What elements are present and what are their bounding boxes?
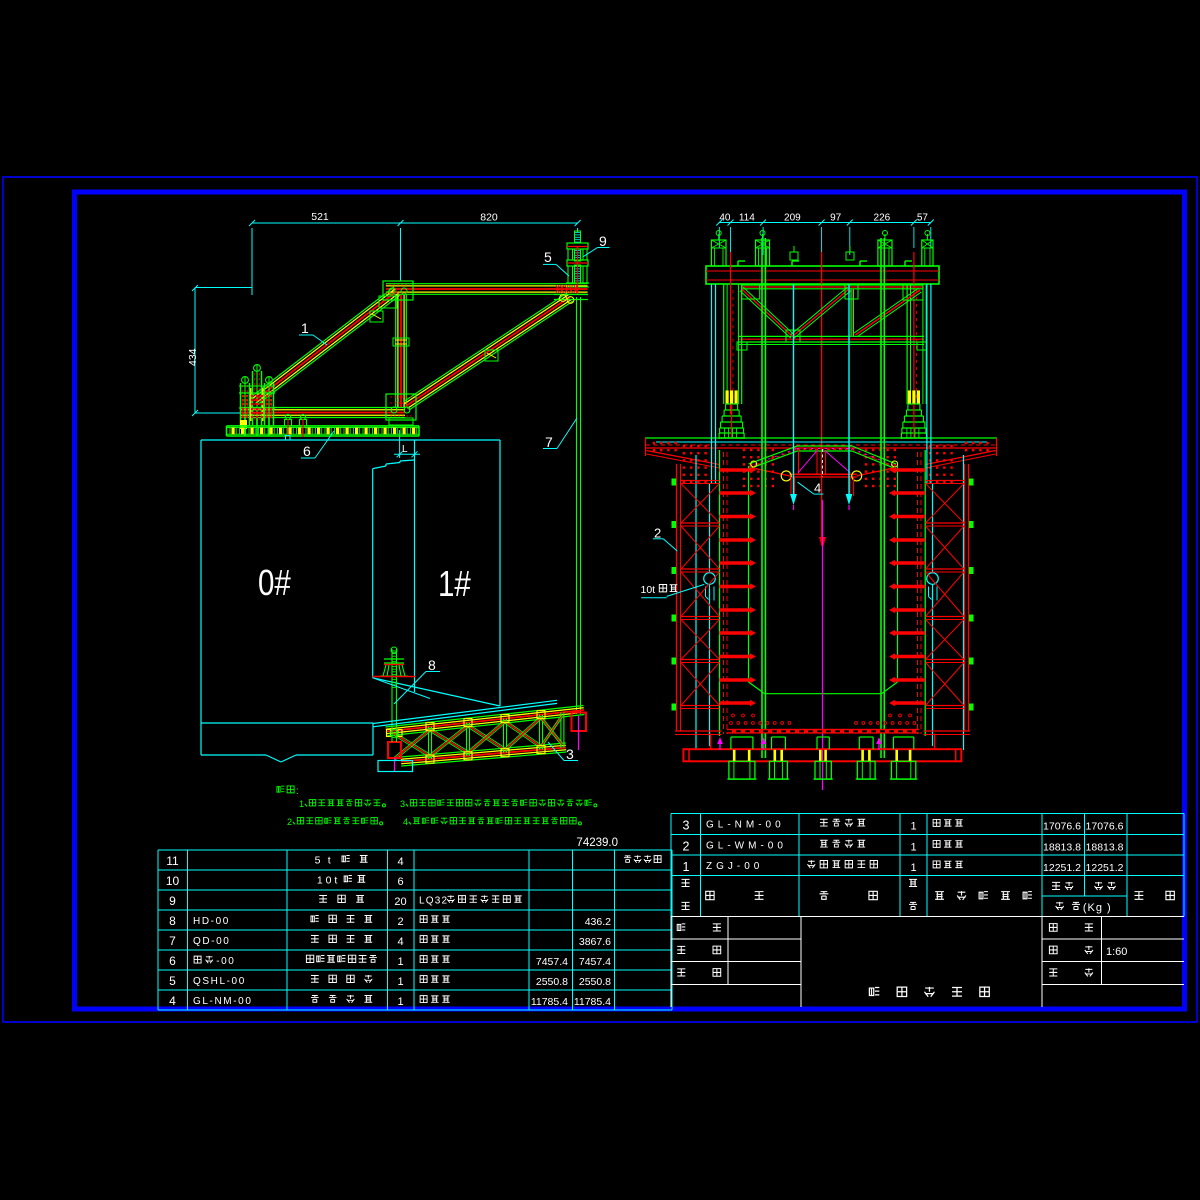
svg-text:18813.8: 18813.8 (1086, 842, 1124, 854)
svg-text:6: 6 (303, 443, 311, 459)
svg-text:6: 6 (397, 876, 403, 888)
svg-text:ZGJ-00: ZGJ-00 (706, 861, 763, 872)
svg-text:5: 5 (544, 249, 552, 265)
svg-text:8: 8 (169, 914, 176, 928)
svg-text:1#: 1# (438, 563, 471, 603)
svg-text:QD-00: QD-00 (193, 936, 230, 947)
svg-text:10: 10 (166, 874, 180, 888)
svg-text:2550.8: 2550.8 (536, 976, 568, 988)
svg-text:7457.4: 7457.4 (579, 956, 611, 968)
svg-text:2: 2 (397, 916, 403, 928)
svg-text:GL-NM-00: GL-NM-00 (193, 996, 252, 1007)
svg-text:6: 6 (169, 954, 176, 968)
svg-text:10t: 10t (641, 584, 656, 596)
svg-text:226: 226 (874, 213, 891, 224)
svg-text:GL-NM-00: GL-NM-00 (706, 820, 785, 831)
svg-text:434: 434 (187, 348, 199, 366)
svg-text:12251.2: 12251.2 (1043, 862, 1081, 874)
svg-text:9: 9 (169, 894, 176, 908)
svg-text:20: 20 (394, 896, 406, 908)
svg-text:HD-00: HD-00 (193, 916, 230, 927)
svg-text:820: 820 (480, 212, 498, 224)
svg-text:12251.2: 12251.2 (1086, 862, 1124, 874)
svg-text:1: 1 (910, 821, 916, 833)
svg-text:1: 1 (910, 842, 916, 854)
svg-text:40: 40 (719, 213, 731, 224)
svg-text:11: 11 (166, 854, 179, 868)
svg-text:(Kg ): (Kg ) (1083, 902, 1112, 914)
svg-text:7: 7 (169, 934, 176, 948)
svg-text:521: 521 (311, 211, 329, 223)
svg-text:5: 5 (169, 974, 176, 988)
svg-text:1:60: 1:60 (1106, 946, 1127, 958)
svg-text:209: 209 (784, 213, 801, 224)
svg-text:8: 8 (428, 657, 436, 673)
svg-text:L: L (402, 444, 408, 455)
svg-text:-00: -00 (216, 956, 235, 967)
svg-text:9: 9 (599, 233, 607, 249)
svg-text:0#: 0# (258, 562, 291, 602)
svg-text:GL-WM-00: GL-WM-00 (706, 841, 787, 852)
svg-text:3: 3 (400, 799, 405, 809)
svg-text:18813.8: 18813.8 (1043, 842, 1081, 854)
svg-text:QSHL-00: QSHL-00 (193, 976, 246, 987)
svg-text:1: 1 (301, 320, 309, 336)
svg-text:74239.0: 74239.0 (576, 837, 618, 849)
svg-text:1: 1 (397, 996, 403, 1008)
svg-text:17076.6: 17076.6 (1043, 821, 1081, 833)
svg-text:114: 114 (739, 213, 755, 224)
svg-text:2: 2 (683, 840, 690, 854)
svg-text:3867.6: 3867.6 (579, 936, 611, 948)
svg-text:5t: 5t (315, 855, 338, 867)
svg-text:17076.6: 17076.6 (1086, 821, 1124, 833)
svg-text:4: 4 (169, 994, 176, 1008)
svg-text:436.2: 436.2 (585, 916, 611, 928)
svg-text:4: 4 (814, 481, 821, 496)
svg-text:11785.4: 11785.4 (531, 996, 568, 1008)
svg-text::: : (296, 786, 299, 797)
svg-text:4: 4 (397, 936, 403, 948)
svg-text:1: 1 (910, 862, 916, 874)
svg-text:3: 3 (683, 819, 690, 833)
svg-text:3: 3 (566, 746, 574, 762)
svg-text:10t: 10t (317, 875, 340, 887)
svg-text:7457.4: 7457.4 (536, 956, 568, 968)
svg-text:7: 7 (545, 434, 553, 450)
svg-text:1: 1 (397, 976, 403, 988)
svg-text:57: 57 (917, 213, 929, 224)
svg-text:4: 4 (403, 817, 408, 827)
svg-text:LQ32: LQ32 (419, 896, 448, 907)
svg-text:4: 4 (397, 856, 403, 868)
svg-text:1: 1 (397, 956, 403, 968)
svg-text:11785.4: 11785.4 (574, 996, 611, 1008)
svg-text:2550.8: 2550.8 (579, 976, 611, 988)
svg-text:1: 1 (683, 860, 690, 874)
svg-text:97: 97 (830, 213, 842, 224)
svg-text:2: 2 (287, 817, 292, 827)
svg-text:1: 1 (299, 799, 304, 809)
